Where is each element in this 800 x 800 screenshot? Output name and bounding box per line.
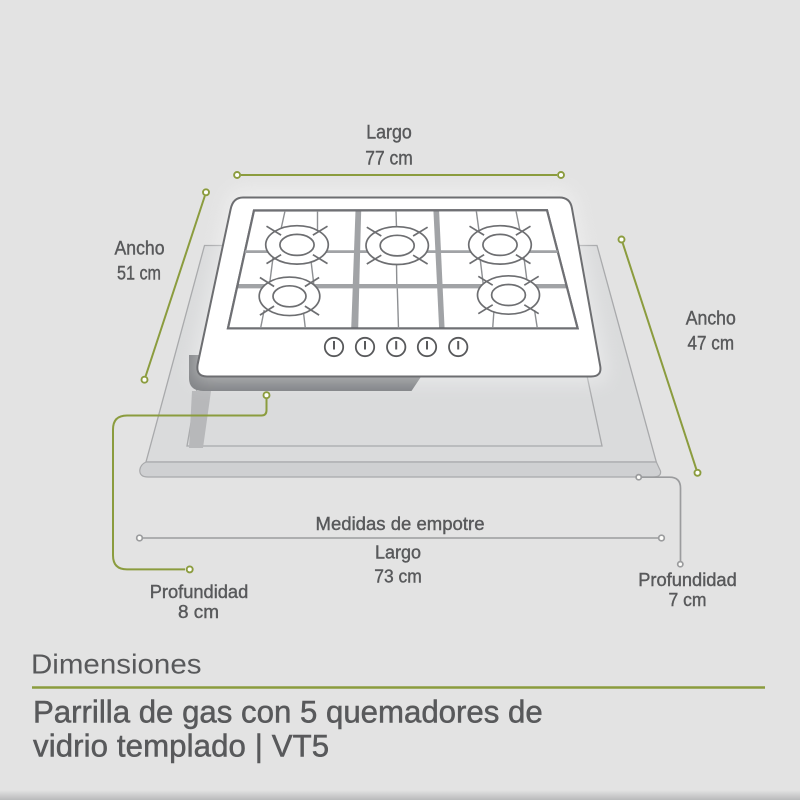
svg-text:7 cm: 7 cm (669, 590, 707, 610)
svg-text:77 cm: 77 cm (365, 149, 413, 170)
svg-text:Profundidad: Profundidad (638, 570, 737, 590)
svg-text:Largo: Largo (375, 543, 421, 563)
svg-text:51 cm: 51 cm (117, 264, 161, 285)
svg-text:vidrio templado | VT5: vidrio templado | VT5 (33, 729, 329, 764)
svg-text:8 cm: 8 cm (178, 602, 219, 622)
svg-text:73 cm: 73 cm (374, 567, 422, 587)
svg-text:Dimensiones: Dimensiones (31, 649, 202, 680)
svg-text:Profundidad: Profundidad (150, 582, 249, 602)
svg-text:47 cm: 47 cm (688, 334, 735, 355)
svg-text:Largo: Largo (366, 122, 412, 143)
svg-text:Parrilla de gas con 5 quemador: Parrilla de gas con 5 quemadores de (33, 695, 543, 730)
svg-text:Medidas de empotre: Medidas de empotre (316, 514, 485, 534)
svg-text:Ancho: Ancho (686, 309, 736, 330)
svg-text:Ancho: Ancho (115, 238, 165, 259)
